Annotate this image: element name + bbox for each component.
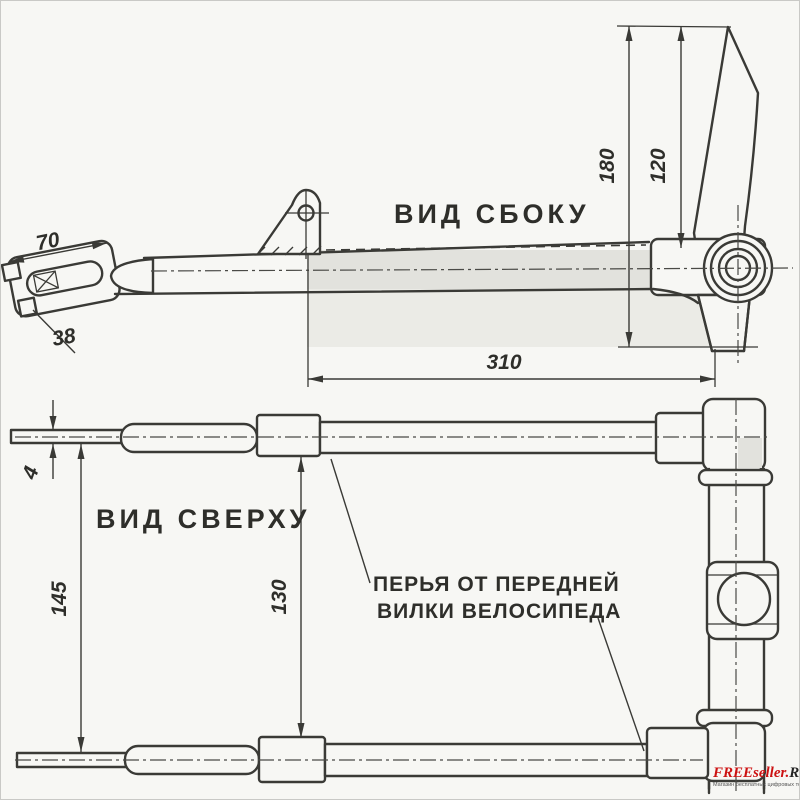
top-view: 4 145 130 ПЕРЬЯ ОТ ПЕРЕДНЕЙ ВИЛКИ ВЕЛОСИ… [11,399,778,793]
dimension-4: 4 [18,400,57,483]
top-leg [11,399,765,471]
dim-310-value: 310 [486,351,521,374]
clevis [1,239,121,319]
dimension-38: 38 [33,310,78,353]
dim-38-value: 38 [50,324,77,351]
leader-line-bottom [598,618,644,751]
watermark-brand: FREEseller.RU [712,765,800,781]
dim-145-value: 145 [48,581,71,616]
under-beam-shading [307,289,715,347]
side-view-label: ВИД СБОКУ [394,199,590,229]
side-view: 180 120 310 70 38 [1,26,793,387]
bottom-collar [647,728,708,778]
clevis-nut-bottom [18,298,37,317]
top-sleeve [257,415,320,456]
watermark-brand-dark: RU [788,765,800,781]
dim-180-value: 180 [596,148,619,183]
top-collar [656,413,706,463]
top-extension-line [617,26,731,27]
fork-blade [694,27,758,253]
dimension-145: 145 [48,444,85,752]
corner-shading [738,438,762,468]
technical-drawing-page: 180 120 310 70 38 [0,0,800,800]
dim-130-value: 130 [268,579,291,614]
dim-4-value: 4 [18,463,44,483]
bottom-leg [17,723,765,793]
annotation-line2: ВИЛКИ ВЕЛОСИПЕДА [377,600,621,623]
watermark-tagline: Магазин бесплатных цифровых товаров [713,782,800,788]
watermark: FREEseller.RU Магазин бесплатных цифровы… [712,765,800,788]
top-taper-tube [121,424,257,452]
dim-120-value: 120 [647,148,670,183]
bicycle-fork-drawing: 180 120 310 70 38 [1,1,800,800]
hub-circle [718,573,770,625]
watermark-brand-red: FREEseller. [712,765,789,781]
annotation-line1: ПЕРЬЯ ОТ ПЕРЕДНЕЙ [373,572,620,596]
gusset-bracket [258,190,320,254]
clevis-nut-top [2,262,21,281]
dim-70-value: 70 [34,228,62,255]
top-view-label: ВИД СВЕРХУ [96,504,310,534]
dimension-130: 130 [268,457,305,738]
leader-line-top [331,459,370,583]
dimension-120: 120 [647,26,685,248]
